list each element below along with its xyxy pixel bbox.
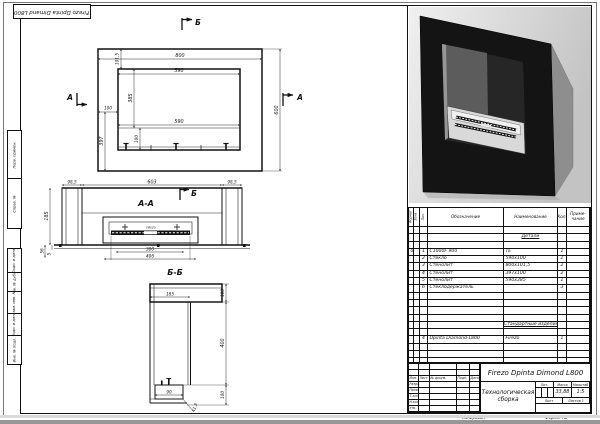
dim-left-lower: 397	[99, 136, 105, 145]
spec-row	[409, 329, 590, 336]
spec-row: 6Стеклодержатель3	[409, 285, 590, 292]
margin-box-label: Инв. № дубл.	[13, 272, 17, 293]
dim-opening-width: 590	[174, 68, 183, 74]
dim-bottom-height: 100	[220, 391, 225, 399]
dim-side-right: 98,5	[227, 180, 237, 185]
burner-brand-label: FIREZO	[146, 226, 156, 230]
spec-row	[409, 307, 590, 314]
spec-row	[409, 315, 590, 322]
margin-box: Перв. примен.	[7, 130, 22, 180]
titleblock-left: Изм.Лист№ докум.Подп.ДатаРазраб.Пров.Т.к…	[409, 364, 481, 412]
section-aa-dimensions: 98,5 603 98,5 185 56 5 300 406	[39, 180, 242, 260]
spec-table-header: Формат Зона Поз. Обозначение Наименовани…	[409, 208, 590, 227]
margin-box-label: Взам. инв. №	[13, 291, 17, 315]
margin-box-label: Подп. и дата	[13, 313, 17, 337]
render-3d	[409, 7, 591, 203]
dim-top-width: 185	[166, 291, 174, 296]
spec-row	[409, 242, 590, 249]
margin-box: Подп. и дата	[7, 248, 22, 274]
col-pos: Поз.	[422, 213, 426, 220]
margin-box: Справ. №	[7, 178, 22, 229]
doc-title: Технологическая сборка	[481, 382, 536, 412]
scale-value: 1:5	[572, 388, 590, 397]
dim-tray-width: 406	[146, 254, 154, 259]
marker-b-aa: Б	[191, 189, 197, 198]
margin-box-label: Справ. №	[13, 195, 17, 212]
dim-side-left: 98,5	[67, 180, 77, 185]
spec-row: 5Стенолит590х3851	[409, 278, 590, 285]
spec-row: 2Стекло590х1001	[409, 256, 590, 263]
dim-offset: 41,5	[191, 402, 199, 413]
front-view-outline	[98, 49, 262, 171]
dim-frame-top: 101,5	[115, 53, 120, 65]
spec-row	[409, 351, 590, 358]
sheet-label: Лист	[536, 398, 563, 404]
col-note: Приме- чание	[567, 208, 590, 226]
spec-row: 01С1000F 900ТЕ1	[409, 249, 590, 256]
spec-row: Стандартные изделия	[409, 322, 590, 329]
section-aa-outline	[54, 188, 250, 249]
spec-row: 4Dpinta Diamond-L800Firezo1	[409, 336, 590, 343]
col-qty: Кол.	[558, 208, 567, 226]
scale-label: Масштаб	[572, 382, 590, 387]
marker-b-top: Б	[195, 18, 201, 27]
margin-box: Инв. № дубл.	[7, 272, 22, 293]
col-name: Наименование	[504, 208, 558, 226]
dim-depth: 185	[44, 211, 50, 220]
titleblock-row: Утв.	[409, 406, 480, 412]
spec-row: Детали	[409, 234, 590, 241]
drawing-sheet: Firezo Dpinta Dimand L800 Перв. примен.С…	[0, 0, 600, 424]
page-edge-dark	[0, 420, 600, 424]
marker-a-right: А	[296, 93, 303, 102]
dim-ledge: 56	[39, 248, 44, 254]
margin-box-label: Подп. и дата	[13, 249, 17, 273]
marker-a-left: А	[66, 93, 73, 102]
spec-row	[409, 300, 590, 307]
page-edge-light	[0, 415, 600, 418]
dim-opening-width-lower: 590	[174, 119, 183, 125]
spec-row	[409, 293, 590, 300]
dim-opening-height: 385	[128, 93, 134, 102]
dim-middle: 603	[147, 180, 156, 186]
spec-row: 3Стенолит800х101,52	[409, 263, 590, 270]
dim-burner-width: 300	[146, 247, 154, 252]
spec-rows: Детали01С1000F 900ТЕ12Стекло590х10013Сте…	[409, 227, 590, 363]
col-format: Формат	[409, 211, 413, 224]
spec-row	[409, 344, 590, 351]
front-view: 800 101,5 590 600 385 100 397 590 100 Б	[55, 8, 315, 178]
mass-label: Масса	[554, 382, 572, 387]
margin-box-label: Инв. № подл.	[13, 338, 17, 363]
title-block: Изм.Лист№ докум.Подп.ДатаРазраб.Пров.Т.к…	[408, 363, 591, 413]
margin-box: Подп. и дата	[7, 313, 22, 337]
margin-box: Взам. инв. №	[7, 291, 22, 315]
col-zone: Зона	[415, 213, 419, 221]
dim-burner-width-bb: 90	[166, 390, 172, 395]
fireplace-3d	[420, 16, 573, 200]
margin-box-label: Перв. примен.	[13, 142, 17, 169]
dim-top-height: 100	[220, 289, 225, 297]
margin-box: Инв. № подл.	[7, 335, 22, 365]
render-3d-panel	[409, 7, 591, 203]
dim-lip: 5	[47, 252, 52, 255]
spec-row	[409, 227, 590, 234]
dim-burner-zone: 100	[134, 135, 139, 143]
section-bb-title: Б-Б	[167, 268, 183, 277]
spec-row: 4Стенолит397х1002	[409, 271, 590, 278]
dim-total-height: 600	[274, 105, 280, 114]
doc-designation: Firezo Dpinta Dimond L800	[481, 364, 590, 382]
section-aa-labels: А-А Б	[137, 188, 197, 208]
dim-total-width: 800	[175, 53, 184, 59]
section-markers: Б А А	[66, 18, 303, 106]
spec-table: Формат Зона Поз. Обозначение Наименовани…	[408, 207, 591, 363]
dim-body-height: 400	[220, 338, 226, 347]
dim-frame-side: 100	[104, 106, 112, 111]
section-aa-title: А-А	[137, 199, 154, 208]
sheets-label: Листов 1	[563, 398, 590, 404]
section-bb-dimensions: 185 100 400 100 90 41,5	[150, 284, 229, 413]
mass-value: 33,88	[554, 388, 572, 397]
burner-tray: FIREZO	[111, 224, 190, 235]
section-bb-view: Б-Б 185 100 400	[125, 264, 260, 420]
front-view-dimensions: 800 101,5 590 600 385 100 397 590 100	[98, 49, 282, 171]
col-designation: Обозначение	[428, 208, 504, 226]
lit-label: Лит.	[536, 382, 554, 387]
